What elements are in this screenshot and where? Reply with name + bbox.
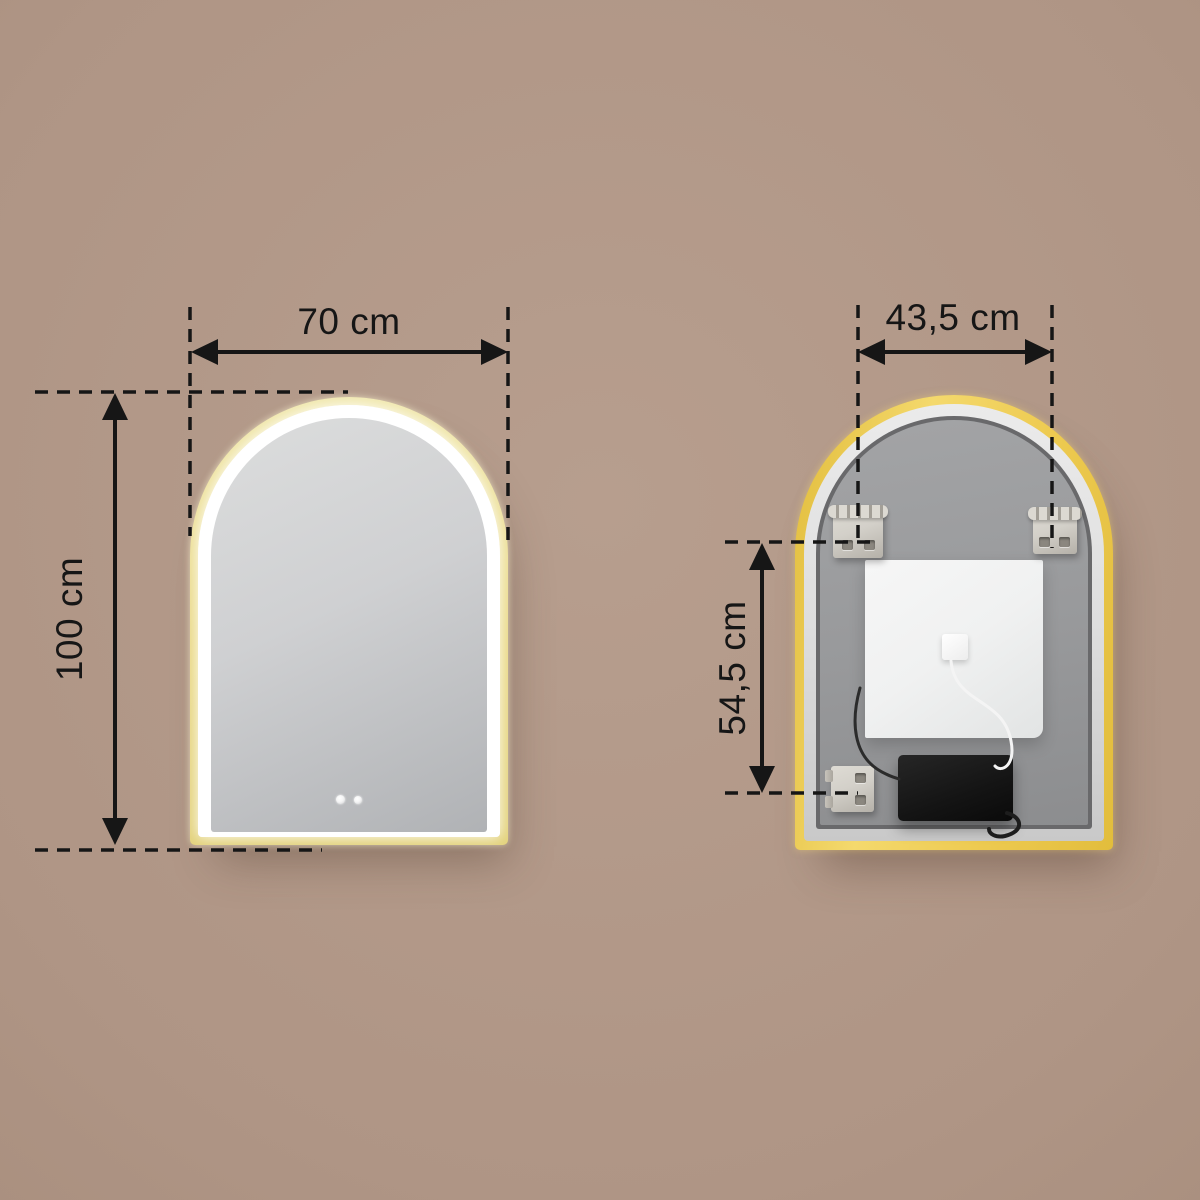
- bracket-hole: [1039, 537, 1050, 547]
- bracket-hinge-knuckle: [1028, 507, 1082, 520]
- back-width-dimension-label: 43,5 cm: [843, 295, 1063, 341]
- front-width-dimension-label: 70 cm: [239, 299, 459, 345]
- mounting-bracket-bottom-left: [831, 766, 874, 812]
- arrowhead-left-icon: [858, 339, 885, 365]
- mirror-back-view: [795, 395, 1113, 850]
- arrowhead-up-icon: [102, 393, 128, 420]
- bracket-tab: [825, 770, 833, 782]
- arrowhead-left-icon: [191, 339, 218, 365]
- back-height-dimension-label: 54,5 cm: [710, 558, 756, 778]
- arrowhead-right-icon: [481, 339, 508, 365]
- back-width-arrow: [858, 339, 1052, 365]
- bracket-hinge-knuckle: [828, 505, 888, 518]
- touch-sensor-icon: [336, 795, 345, 804]
- bracket-hole: [855, 773, 866, 783]
- mounting-bracket-top-left: [833, 508, 883, 558]
- arrowhead-down-icon: [102, 818, 128, 845]
- front-height-arrow: [102, 393, 128, 845]
- bracket-tab: [825, 796, 833, 808]
- led-driver-box: [898, 755, 1013, 821]
- bracket-hole: [842, 540, 853, 550]
- mirror-glass: [211, 418, 487, 832]
- arrowhead-right-icon: [1025, 339, 1052, 365]
- dimension-diagram-canvas: 70 cm 100 cm 43,5 cm 54,5 cm: [0, 0, 1200, 1200]
- touch-sensor-icon: [354, 796, 362, 804]
- bracket-hole: [864, 540, 875, 550]
- mirror-front-view: [190, 397, 508, 845]
- bracket-hole: [1059, 537, 1070, 547]
- front-height-dimension-label: 100 cm: [47, 509, 93, 729]
- mounting-bracket-top-right: [1033, 510, 1077, 554]
- bracket-hole: [855, 795, 866, 805]
- junction-connector: [942, 634, 968, 660]
